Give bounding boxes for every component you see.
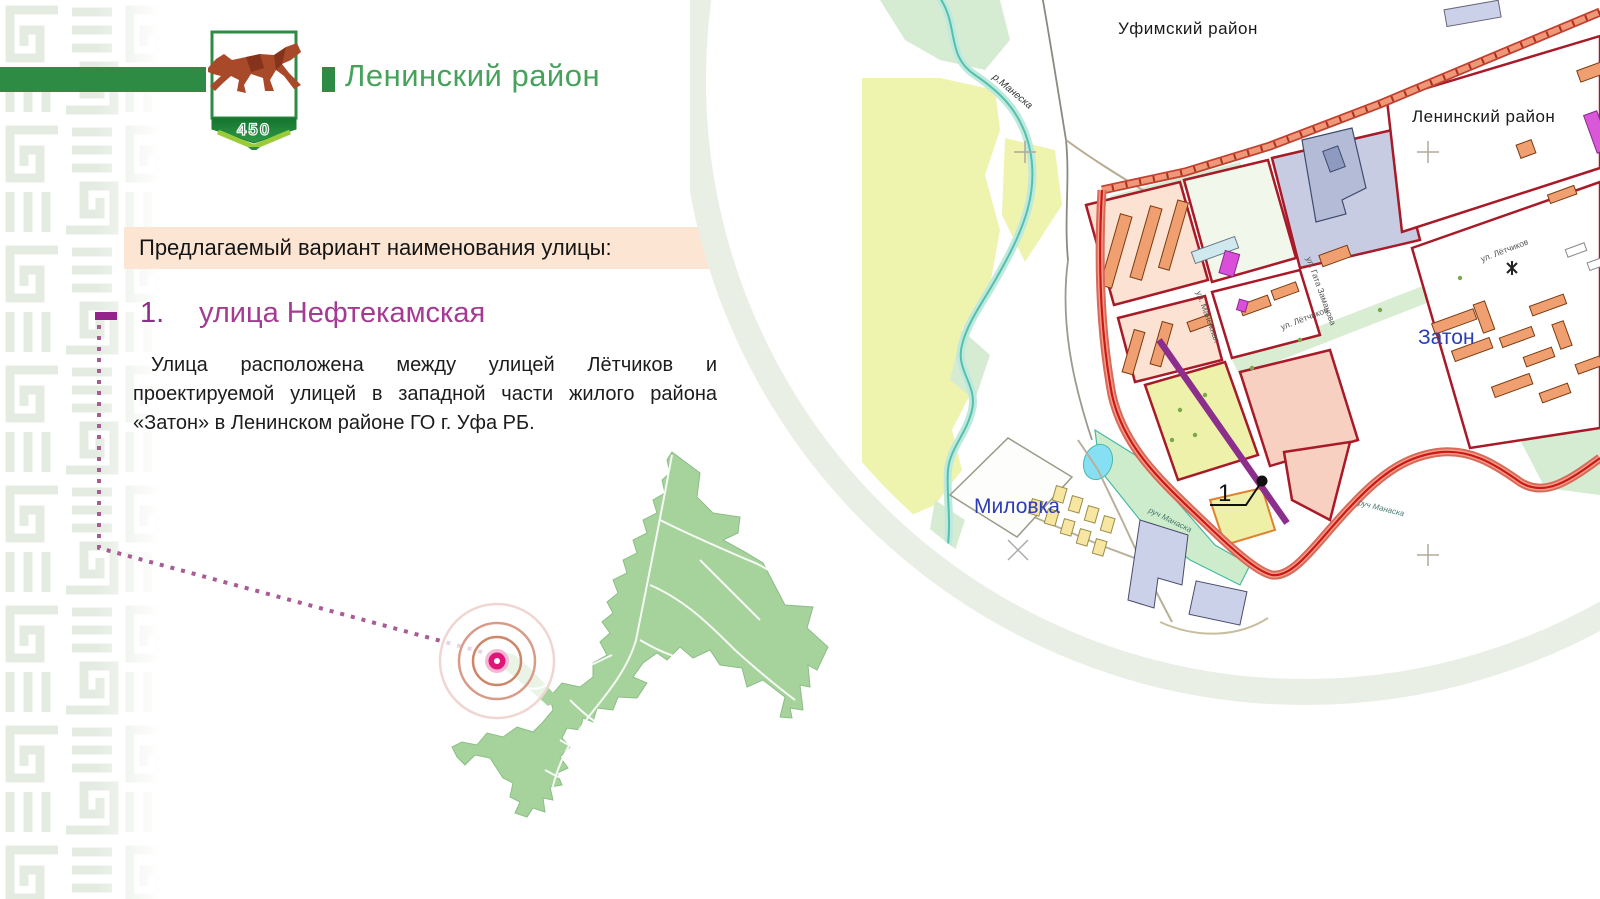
header-green-bar <box>0 67 206 92</box>
header-green-bar-accent <box>322 67 335 92</box>
slide: { "header": { "district_title": "Ленинск… <box>0 0 1600 899</box>
label-milovka: Миловка <box>974 495 1060 518</box>
location-target-marker <box>439 603 555 719</box>
marker-number-label: 1 <box>1218 480 1231 507</box>
dotted-leader-line <box>99 325 489 654</box>
label-zaton: Затон <box>1418 326 1475 349</box>
logo-year-label: 450 <box>237 120 271 139</box>
page-title: Ленинский район <box>345 58 600 94</box>
label-ufimsky-district: Уфимский район <box>1118 19 1258 38</box>
district-detail-map: р.Манеска руч Манаска руч Манаска ул. Лё… <box>690 0 1600 899</box>
label-leninsky-district: Ленинский район <box>1412 107 1555 126</box>
proposal-banner: Предлагаемый вариант наименования улицы: <box>124 227 712 269</box>
district-logo: 450 <box>201 28 311 150</box>
